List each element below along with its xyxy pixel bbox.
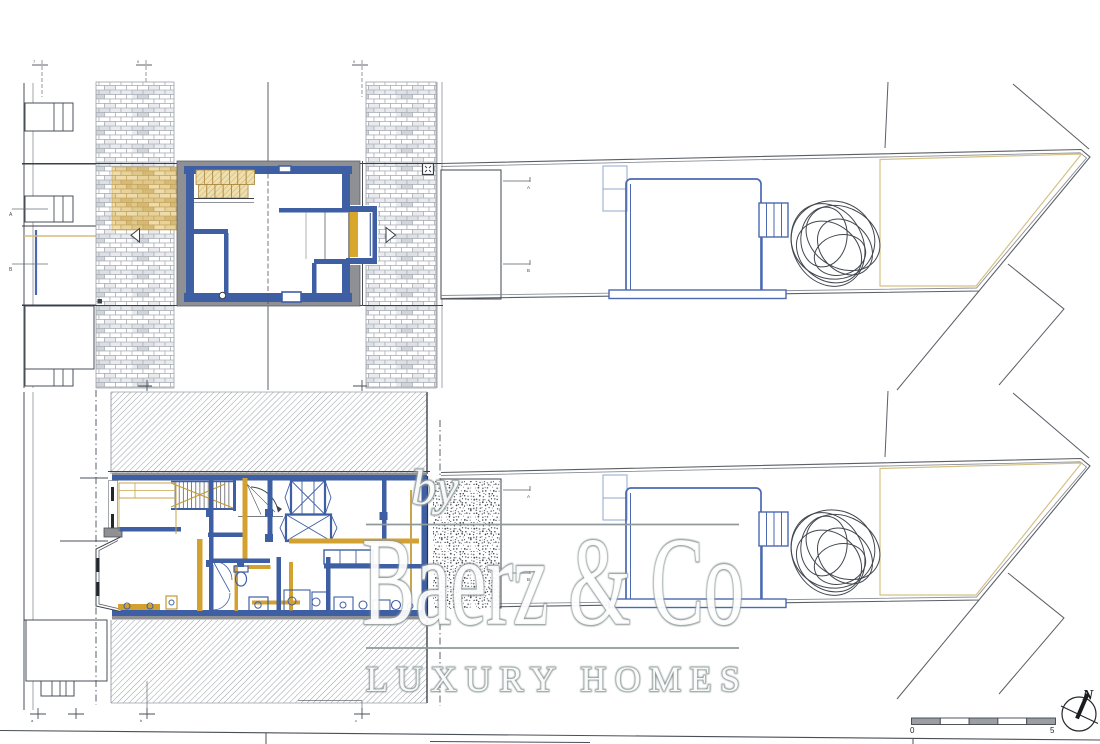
svg-text:N: N	[1082, 688, 1095, 704]
svg-text:Baerz & Co: Baerz & Co	[362, 513, 744, 652]
svg-text:A: A	[527, 185, 530, 190]
svg-text:c: c	[355, 718, 357, 723]
svg-text:by: by	[411, 459, 459, 515]
svg-text:5: 5	[1050, 726, 1055, 735]
svg-text:0: 0	[910, 726, 915, 735]
svg-text:B: B	[527, 268, 530, 273]
